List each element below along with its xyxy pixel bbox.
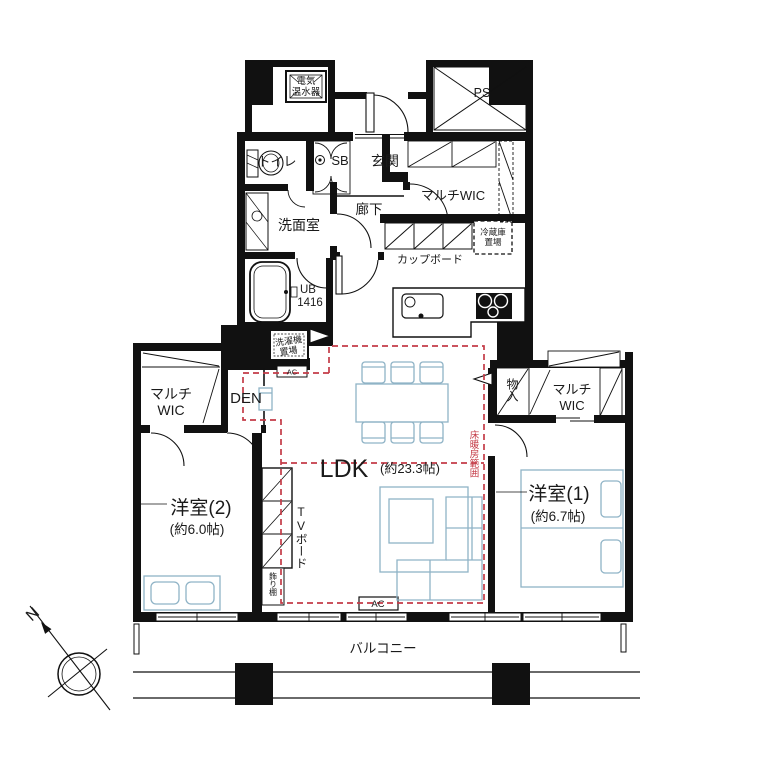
label-fridge-2: 置場 xyxy=(484,237,502,247)
label-entrance: 玄関 xyxy=(371,153,399,169)
label-water-heater-1: 電気 xyxy=(296,75,316,87)
windows xyxy=(156,613,601,621)
label-bedroom1: 洋室(1) xyxy=(528,483,589,505)
label-hallway: 廊下 xyxy=(356,201,383,217)
living-table xyxy=(389,499,433,543)
label-multi-wic-left-1: マルチ xyxy=(150,386,192,402)
hall-wic-shelves xyxy=(408,141,513,222)
label-display-shelf: 飾り棚 xyxy=(269,571,278,597)
label-unit-bath-size: 1416 xyxy=(297,297,323,309)
label-ldk-size: (約23.3帖) xyxy=(380,461,440,476)
label-bedroom1-size: (約6.7帖) xyxy=(531,509,586,524)
label-bedroom2: 洋室(2) xyxy=(170,497,231,519)
label-bedroom2-size: (約6.0帖) xyxy=(170,522,225,537)
label-fridge-1: 冷蔵庫 xyxy=(480,227,506,237)
label-storage: 物入 xyxy=(505,378,519,402)
label-ps: PS xyxy=(474,86,491,100)
balcony xyxy=(133,624,640,705)
tv-board xyxy=(262,468,292,568)
label-ldk: LDK xyxy=(320,455,369,483)
label-cupboard: カップボード xyxy=(397,253,463,266)
label-balcony: バルコニー xyxy=(349,641,416,656)
label-tv-board: TVボード xyxy=(294,505,308,569)
label-multi-wic-left-2: WIC xyxy=(157,402,184,418)
walls xyxy=(133,60,633,622)
rug xyxy=(380,487,468,572)
bathtub-fixture xyxy=(250,262,297,322)
label-unit-bath: UB xyxy=(300,284,316,296)
label-multi-wic-right-1: マルチ xyxy=(552,382,591,397)
label-floor-heating: 床暖房範囲 xyxy=(468,429,480,478)
cupboard-counter xyxy=(385,223,472,249)
label-shoe-box: SB xyxy=(331,153,348,168)
bed-double xyxy=(144,576,220,610)
floor-plan: 電気 温水器 PS トイレ SB 玄関 マルチWIC 廊下 洗面室 冷蔵庫 置場… xyxy=(0,0,768,768)
compass-icon xyxy=(30,606,110,710)
label-toilet: トイレ xyxy=(257,154,296,169)
label-ac-living: AC xyxy=(371,599,384,610)
label-water-heater-2: 温水器 xyxy=(292,86,321,98)
vanity-fixture xyxy=(246,193,268,250)
label-ac-den: AC xyxy=(287,368,298,377)
label-multi-wic-right-2: WIC xyxy=(559,398,584,413)
dining-table xyxy=(356,384,448,422)
label-den: DEN xyxy=(230,390,262,407)
knob-dot xyxy=(318,158,321,161)
label-compass-north: N xyxy=(23,604,43,624)
floor-plan-page: 電気 温水器 PS トイレ SB 玄関 マルチWIC 廊下 洗面室 冷蔵庫 置場… xyxy=(0,0,768,768)
sofa xyxy=(397,497,482,600)
dining-chairs xyxy=(362,362,443,443)
label-multi-wic-hall: マルチWIC xyxy=(421,188,485,203)
stove-fixture xyxy=(476,293,512,319)
label-washroom: 洗面室 xyxy=(278,217,320,233)
